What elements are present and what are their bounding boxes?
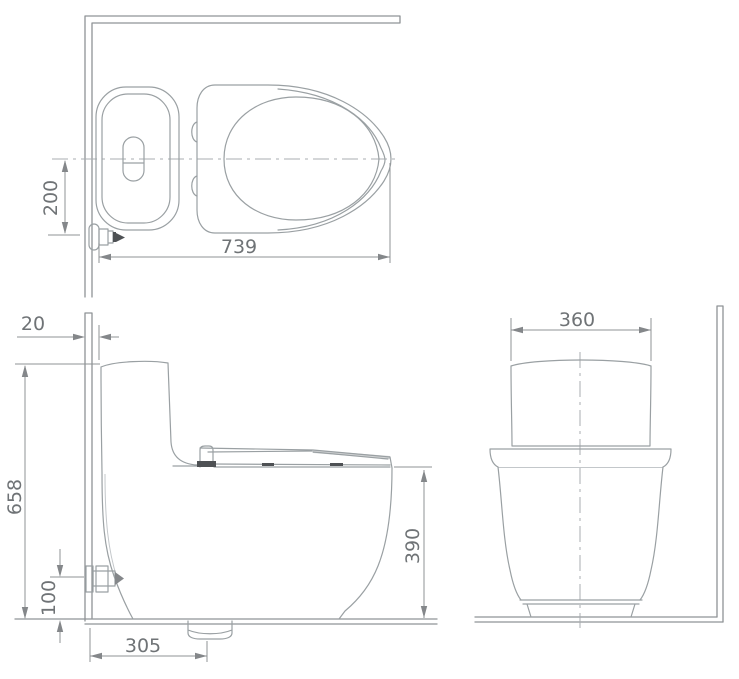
tank-front-outline	[511, 360, 651, 446]
dimension-200: 200	[40, 160, 80, 235]
dimension-360: 360	[511, 309, 651, 361]
dimension-label-100: 100	[38, 580, 60, 616]
floor-line-side-view	[15, 619, 437, 624]
dimension-390: 390	[394, 467, 432, 618]
water-inlet-spout	[115, 572, 124, 585]
side-view: 20 658 100 305	[4, 313, 437, 662]
dimension-label-360: 360	[559, 309, 595, 331]
dimension-20: 20	[17, 313, 119, 360]
dimension-305: 305	[90, 628, 207, 662]
water-inlet-clip	[113, 232, 125, 242]
drawing-canvas: 200 739	[0, 0, 739, 679]
water-inlet-valve-body	[96, 566, 108, 592]
floor-line-front-view	[475, 617, 723, 622]
wall-line-front-view	[717, 306, 723, 622]
dimension-label-658: 658	[4, 479, 26, 515]
pedestal-base-front	[520, 600, 642, 617]
toilet-technical-drawing: 200 739	[0, 0, 739, 679]
tank-back-inner-line	[105, 474, 117, 578]
dimension-label-20: 20	[21, 313, 45, 335]
dimension-label-305: 305	[125, 635, 161, 657]
water-inlet-top	[89, 224, 125, 250]
seat-hinge-bumps	[192, 122, 197, 196]
dimension-label-200: 200	[40, 180, 62, 216]
dimension-739: 739	[99, 163, 390, 263]
bowl-front-profile	[339, 468, 392, 619]
seat-lid-side	[200, 448, 392, 468]
dimension-100: 100	[38, 549, 84, 643]
top-view: 200 739	[40, 16, 400, 297]
water-inlet-body	[99, 229, 113, 245]
front-view: 360	[475, 306, 723, 628]
water-inlet-flange	[89, 224, 99, 250]
dimension-label-390: 390	[402, 528, 424, 564]
dimension-label-739: 739	[221, 236, 257, 258]
tank-outline-outer	[96, 87, 179, 230]
